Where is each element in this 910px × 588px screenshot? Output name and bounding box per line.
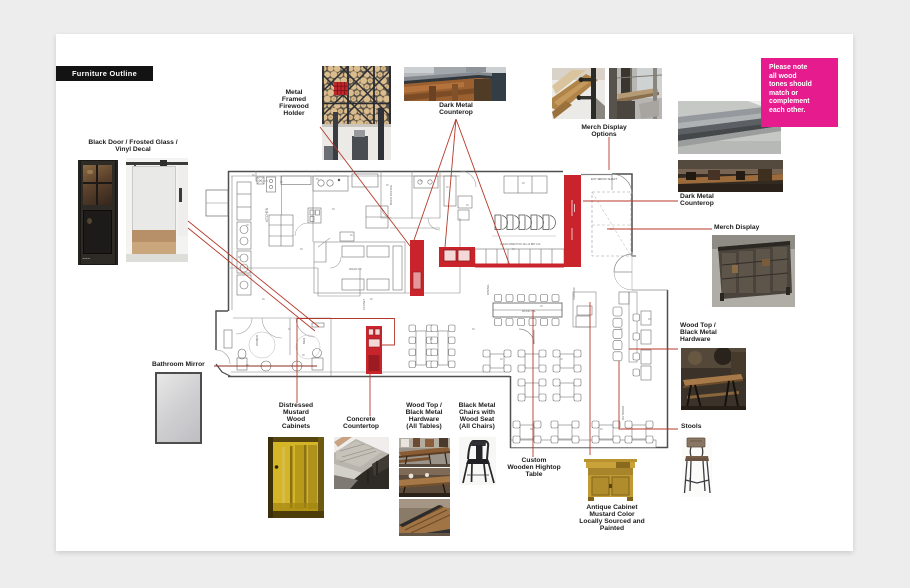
svg-text:lIIl: lIIl: [332, 207, 335, 211]
svg-text:lIIl: lIIl: [446, 185, 449, 189]
svg-text:lIIl: lIIl: [540, 304, 543, 308]
svg-text:lIIl: lIIl: [386, 183, 389, 187]
svg-text:lIIl: lIIl: [466, 203, 469, 207]
svg-text:lIIl: lIIl: [300, 247, 303, 251]
svg-text:lIIl: lIIl: [560, 357, 563, 361]
svg-text:lIIl: lIIl: [648, 317, 651, 321]
svg-text:lIIl: lIIl: [302, 353, 305, 357]
svg-text:lIIl: lIIl: [280, 180, 283, 184]
svg-text:lIIl: lIIl: [522, 181, 525, 185]
svg-text:lIIl: lIIl: [370, 297, 373, 301]
svg-text:lIIl: lIIl: [472, 327, 475, 331]
svg-text:lIIl: lIIl: [598, 177, 601, 181]
svg-text:lIIl: lIIl: [600, 427, 603, 431]
svg-text:lIIl: lIIl: [262, 297, 265, 301]
svg-text:lIIl: lIIl: [350, 233, 353, 237]
svg-text:lIIl: lIIl: [500, 357, 503, 361]
svg-text:lIIl: lIIl: [238, 255, 241, 259]
svg-text:lIIl: lIIl: [420, 179, 423, 183]
svg-text:lIIl: lIIl: [620, 327, 623, 331]
svg-text:lIIl: lIIl: [246, 223, 249, 227]
svg-text:lIIl: lIIl: [316, 177, 319, 181]
svg-text:lIIl: lIIl: [430, 337, 433, 341]
svg-text:lIIl: lIIl: [252, 173, 255, 177]
svg-text:lIIl: lIIl: [288, 327, 291, 331]
svg-text:lIIl: lIIl: [512, 247, 515, 251]
